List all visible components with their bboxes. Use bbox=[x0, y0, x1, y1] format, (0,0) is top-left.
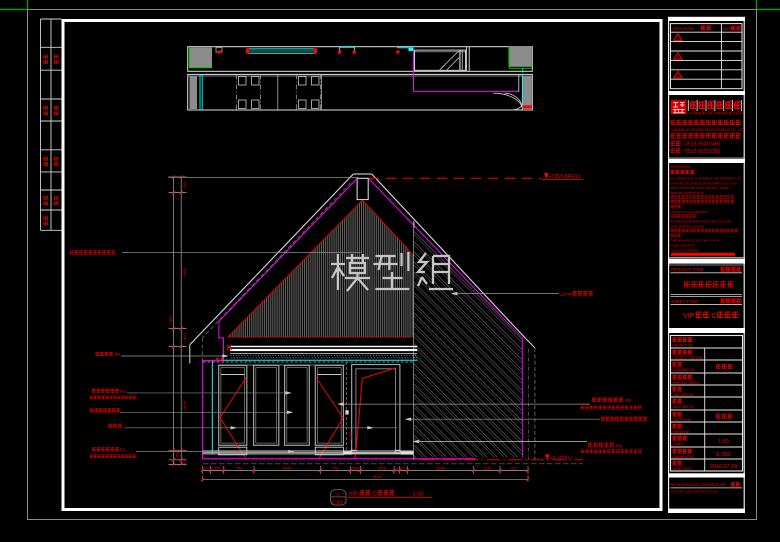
svg-text:CHINAROOT DESIGN DEVELOPMENT C: CHINAROOT DESIGN DEVELOPMENT CO.,LTD bbox=[671, 181, 738, 185]
svg-text:410: 410 bbox=[511, 465, 518, 470]
svg-text:AND CANNOT BE USED WITHOUT THE: AND CANNOT BE USED WITHOUT THEIR bbox=[671, 186, 730, 190]
svg-text:DRAWN BY: DRAWN BY bbox=[673, 430, 691, 434]
svg-text:1180: 1180 bbox=[348, 431, 353, 440]
svg-text:DISCIPLINE: DISCIPLINE bbox=[673, 418, 692, 422]
svg-text:CHINAROOT XIERN DESIGN: CHINAROOT XIERN DESIGN bbox=[689, 111, 743, 116]
svg-text:UNLESS CERTIFIED: UNLESS CERTIFIED bbox=[671, 248, 700, 252]
svg-text:2016.07.18: 2016.07.18 bbox=[710, 464, 737, 470]
svg-text:750: 750 bbox=[236, 465, 243, 470]
svg-text:DESIGNED BY: DESIGNED BY bbox=[673, 405, 696, 409]
svg-text:E-303: E-303 bbox=[332, 500, 344, 505]
svg-text:R5: R5 bbox=[626, 398, 632, 403]
svg-text:1:50: 1:50 bbox=[718, 439, 729, 445]
svg-text:PROJECT No.: PROJECT No. bbox=[673, 344, 694, 348]
svg-text:8050: 8050 bbox=[373, 474, 383, 479]
svg-text:THE DRAWING IS NOT VALID FOR: THE DRAWING IS NOT VALID FOR bbox=[671, 239, 720, 243]
svg-text:R4: R4 bbox=[120, 389, 126, 394]
svg-text:C: C bbox=[712, 313, 717, 320]
svg-text:7360: 7360 bbox=[168, 315, 173, 325]
svg-text:ALL MEASUREMENTS MUST BE CHECK: ALL MEASUREMENTS MUST BE CHECKED bbox=[671, 220, 733, 224]
svg-text:MAIN ENGINEER: MAIN ENGINEER bbox=[673, 381, 700, 385]
svg-text:PROJECT CAPTAIN: PROJECT CAPTAIN bbox=[673, 356, 704, 360]
svg-text:12mm: 12mm bbox=[560, 292, 573, 297]
svg-text:750: 750 bbox=[332, 465, 339, 470]
svg-text:E-303: E-303 bbox=[716, 452, 730, 458]
svg-text:326: 326 bbox=[214, 465, 221, 470]
svg-text:74: 74 bbox=[394, 465, 399, 470]
svg-text:R8: R8 bbox=[115, 352, 121, 357]
svg-text:VIP: VIP bbox=[349, 491, 358, 497]
svg-text:2800: 2800 bbox=[182, 400, 187, 410]
svg-text:WRITTEN PERMISSION: WRITTEN PERMISSION bbox=[671, 191, 704, 195]
svg-text:SCALE: SCALE bbox=[673, 442, 685, 446]
svg-text:3360: 3360 bbox=[182, 267, 187, 277]
svg-text:DRAWING NO.: DRAWING NO. bbox=[673, 455, 696, 459]
svg-text:234: 234 bbox=[176, 452, 180, 458]
svg-text:1636: 1636 bbox=[436, 465, 446, 470]
svg-text:AND VERIFIED ON SITE: AND VERIFIED ON SITE bbox=[671, 224, 705, 228]
svg-text:VIP: VIP bbox=[683, 313, 695, 320]
svg-text:c: c bbox=[337, 492, 340, 498]
svg-text:ATTENTION:: ATTENTION: bbox=[671, 165, 691, 169]
svg-text:ISSUE DATE: ISSUE DATE bbox=[673, 467, 693, 471]
svg-text:C: C bbox=[373, 491, 377, 497]
svg-text:460: 460 bbox=[182, 332, 187, 339]
svg-text:: 0512-55215466: : 0512-55215466 bbox=[683, 142, 721, 148]
svg-text:60: 60 bbox=[183, 460, 187, 464]
svg-text:R2: R2 bbox=[120, 447, 126, 452]
svg-text:CONSTRUCTION: CONSTRUCTION bbox=[671, 244, 695, 248]
svg-text:ALL DRAWINGS IN DRAWING THE PR: ALL DRAWINGS IN DRAWING THE PROPERTY OF bbox=[671, 177, 742, 181]
svg-text:±0 AFF(L): ±0 AFF(L) bbox=[551, 455, 573, 461]
svg-text:REVISIONS: REVISIONS bbox=[673, 26, 695, 31]
svg-text:: 0512-55215366: : 0512-55215366 bbox=[683, 149, 721, 155]
svg-text:R6: R6 bbox=[616, 443, 622, 448]
svg-text:CHINAROOT DESIGN DEVELOPMENT C: CHINAROOT DESIGN DEVELOPMENT CO., LTD bbox=[671, 128, 745, 132]
svg-text:19FL/16FL/15FL/12FL/9FL/6FL/3F: 19FL/16FL/15FL/12FL/9FL/6FL/3FL bbox=[671, 490, 719, 494]
svg-text:DO NOT SCALE DRAWING: DO NOT SCALE DRAWING bbox=[671, 210, 709, 214]
svg-text:EXAMINED BY: EXAMINED BY bbox=[673, 368, 696, 372]
svg-text:1640: 1640 bbox=[283, 465, 293, 470]
svg-text:1:50: 1:50 bbox=[413, 491, 424, 497]
svg-text:PROJECT TITLE: PROJECT TITLE bbox=[671, 267, 704, 272]
svg-text:1130: 1130 bbox=[483, 465, 492, 470]
svg-text:2406: 2406 bbox=[351, 465, 361, 470]
svg-text:415: 415 bbox=[400, 465, 407, 470]
svg-text:SHEET TITLE: SHEET TITLE bbox=[671, 299, 698, 304]
svg-text:CHECKED BY: CHECKED BY bbox=[673, 393, 695, 397]
svg-text:390: 390 bbox=[182, 181, 187, 188]
svg-text:1508: 1508 bbox=[377, 465, 387, 470]
svg-text:REVISIONS AND SUBMISSIONS: REVISIONS AND SUBMISSIONS bbox=[671, 483, 727, 487]
svg-text:200: 200 bbox=[203, 465, 210, 470]
